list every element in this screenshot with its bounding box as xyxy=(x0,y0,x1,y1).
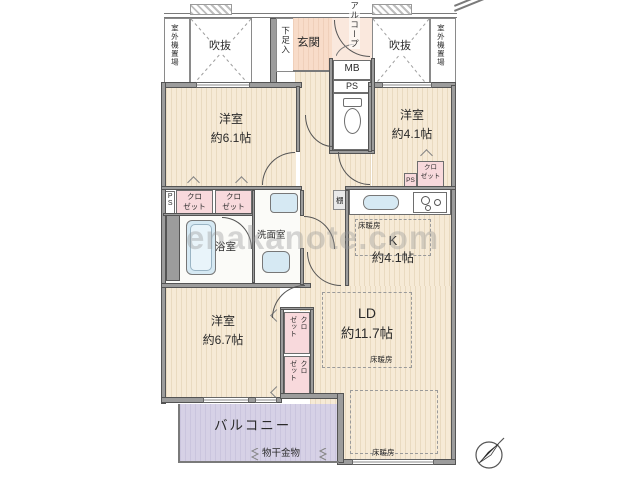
washing-machine-icon xyxy=(270,193,298,213)
bedroom2-name: 洋室 xyxy=(377,106,447,125)
living-size: 約11.7帖 xyxy=(327,326,407,343)
bedroom2-size: 約4.1帖 xyxy=(377,125,447,144)
closet-label: クロ ゼット xyxy=(215,192,252,212)
window xyxy=(382,82,432,88)
bedroom1-name: 洋室 xyxy=(181,110,281,129)
pipe-space-label: PS xyxy=(404,177,417,185)
watermark: enakanote.com xyxy=(186,219,486,257)
bedroom3-size: 約6.7帖 xyxy=(173,331,273,350)
wall xyxy=(296,86,300,152)
sink-icon xyxy=(363,195,399,210)
wall xyxy=(310,307,314,399)
toilet-icon xyxy=(343,98,362,107)
wall xyxy=(280,393,344,399)
window xyxy=(352,459,434,465)
hatched-opening xyxy=(372,4,412,15)
wall xyxy=(163,213,253,216)
living-floor-heating-label2: 床暖房 xyxy=(372,448,395,457)
closet-label: クロ ゼット xyxy=(287,360,308,396)
window xyxy=(203,397,249,403)
zigzag-icon xyxy=(250,448,260,461)
wall xyxy=(161,283,311,288)
bedroom2-label: 洋室 約4.1帖 xyxy=(377,106,447,144)
pipe-space-label: PS xyxy=(165,193,174,207)
toilet-icon xyxy=(344,108,361,134)
alcove-label: アルコープ xyxy=(349,1,360,49)
window xyxy=(196,82,250,88)
entrance-label: 玄関 xyxy=(297,36,320,50)
hatched-opening xyxy=(190,4,232,15)
bedroom3-label: 洋室 約6.7帖 xyxy=(173,312,273,350)
void-left-label: 吹抜 xyxy=(208,40,232,54)
laundry-fitting-label: 物干金物 xyxy=(262,448,300,460)
outdoor-unit-right-label: 室外機置場 xyxy=(436,24,445,67)
zigzag-icon xyxy=(318,448,328,461)
shoe-cabinet-label: 下足入 xyxy=(280,26,291,55)
wall xyxy=(368,86,372,152)
floor-heating-area xyxy=(350,390,438,454)
meter-box-label: MB xyxy=(333,63,371,76)
balcony-label: バルコニー xyxy=(214,418,291,435)
bedroom1-label: 洋室 約6.1帖 xyxy=(181,110,281,148)
closet-label: クロ ゼット xyxy=(287,316,308,352)
wall xyxy=(337,393,344,463)
living-name: LD xyxy=(337,305,397,323)
shelf-label: 棚 xyxy=(336,196,344,205)
void-right-label: 吹抜 xyxy=(388,40,412,54)
balcony-edge-line xyxy=(178,404,180,461)
compass-icon xyxy=(470,434,512,472)
wall xyxy=(300,190,304,216)
wall xyxy=(161,186,302,190)
wall xyxy=(166,215,180,281)
outdoor-unit-left-label: 室外機置場 xyxy=(170,24,179,67)
window xyxy=(255,397,277,403)
pipe-space-label: PS xyxy=(333,81,371,92)
floor-plan: 室外機置場 吹抜 下足入 玄関 アルコープ 吹抜 室外機置場 MB PS xyxy=(0,0,640,480)
living-floor-heating-label: 床暖房 xyxy=(370,355,393,364)
wall xyxy=(451,85,456,465)
bedroom1-size: 約6.1帖 xyxy=(181,129,281,148)
balcony-edge-line xyxy=(178,461,339,463)
bedroom3-name: 洋室 xyxy=(173,312,273,331)
top-boundary-diagonal xyxy=(454,0,485,11)
entrance-step-line xyxy=(293,70,332,72)
stove-icon xyxy=(413,192,447,213)
closet-label: クロ ゼット xyxy=(417,164,444,182)
wall xyxy=(345,186,456,190)
wall xyxy=(280,307,284,399)
closet-label: クロ ゼット xyxy=(176,192,213,212)
